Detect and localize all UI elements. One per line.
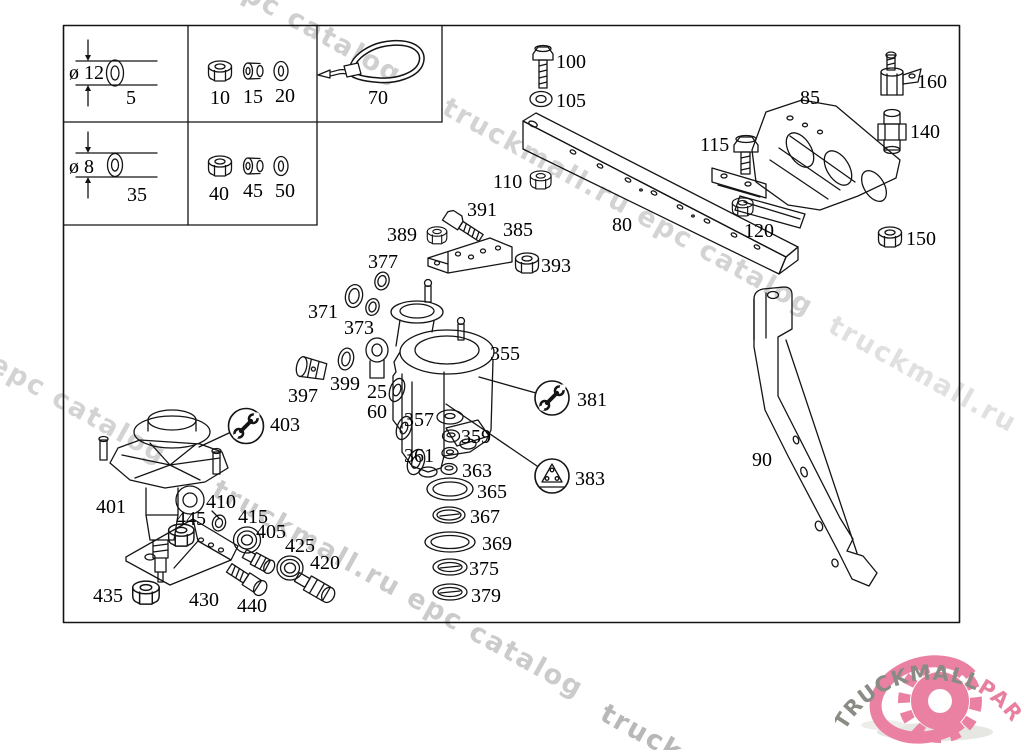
arm-90-drawing [754,287,877,586]
cable-tie-drawing [318,43,422,80]
part-label-105: 105 [556,91,586,111]
part-label-40: 40 [209,184,229,204]
part-label-393: 393 [541,256,571,276]
nut-393-drawing [516,253,539,273]
part-label-90: 90 [752,450,772,470]
part-label-375: 375 [469,559,499,579]
part-label-355: 355 [490,344,520,364]
fitting-160-drawing [881,52,921,95]
legend-fasteners-row2 [209,156,289,176]
part-label-430: 430 [189,590,219,610]
part-label-115: 115 [700,135,729,155]
part-label-397: 397 [288,386,318,406]
nut-110-drawing [530,171,551,189]
bracket-85-drawing [712,100,900,228]
oring-373-drawing [364,297,381,317]
part-label-140: 140 [910,122,940,142]
part-label-373: 373 [344,318,374,338]
part-label-369: 369 [482,534,512,554]
part-label-160: 160 [917,72,947,92]
part-label-365: 365 [477,482,507,502]
part-label-405: 405 [256,522,286,542]
part-label-25: 25 [367,382,387,402]
part-label-10: 10 [210,88,230,108]
part-label-391: 391 [467,200,497,220]
part-label-120: 120 [744,221,774,241]
legend-fasteners-row1 [209,61,289,81]
oring-377-drawing [373,270,391,291]
part-label-367: 367 [470,507,500,527]
part-label-389: 389 [387,225,417,245]
bushing-25-60-drawing [366,338,388,378]
parts-diagram-page: truckmall.ru epc catalogtruckmall.ru epc… [0,0,1024,750]
truckmallparts-logo: TRUCKMALLPARTS [835,635,1024,750]
part-label-445: 445 [176,509,206,529]
oring-371-drawing [343,283,364,309]
part-label-379: 379 [471,586,501,606]
part-label-100: 100 [556,52,586,72]
part-label-403: 403 [270,415,300,435]
part-label-359: 359 [461,427,491,447]
washer-105-drawing [530,92,552,107]
part-label-5: 5 [126,88,136,108]
part-label-150: 150 [906,229,936,249]
part-label-50: 50 [275,181,295,201]
part-label-385: 385 [503,220,533,240]
part-label-383: 383 [575,469,605,489]
part-label-357: 357 [404,410,434,430]
plug-405-drawing [241,547,277,575]
bolt-100-drawing [533,46,553,89]
part-label-381: 381 [577,390,607,410]
part-label-363: 363 [462,461,492,481]
part-label-410: 410 [206,492,236,512]
nut-435-drawing [133,581,159,604]
part-label-85: 85 [800,88,820,108]
part-label-80: 80 [612,215,632,235]
nut-150-drawing [879,227,902,247]
part-label-45: 45 [243,181,263,201]
bolt-440-drawing [225,561,270,598]
part-label-361: 361 [404,446,434,466]
grommet-425-drawing [277,556,303,580]
part-label-110: 110 [493,172,522,192]
oring-410-drawing [211,514,228,533]
part-label-377: 377 [368,252,398,272]
part-label-371: 371 [308,302,338,322]
part-label-35: 35 [127,185,147,205]
part-label-440: 440 [237,596,267,616]
part-label-60: 60 [367,402,387,422]
nut-389-drawing [427,227,447,244]
part-label-399: 399 [330,374,360,394]
fitting-140-drawing [878,110,906,154]
dimension-label-ø12: ø 12 [69,63,104,83]
dimension-label-ø8: ø 8 [69,157,94,177]
part-label-401: 401 [96,497,126,517]
part-label-435: 435 [93,586,123,606]
part-label-420: 420 [310,553,340,573]
fitting-397-drawing [295,356,328,382]
part-label-20: 20 [275,86,295,106]
oring-399-drawing [336,347,355,372]
part-label-70: 70 [368,88,388,108]
bracket-385-drawing [428,238,512,273]
part-label-15: 15 [243,87,263,107]
